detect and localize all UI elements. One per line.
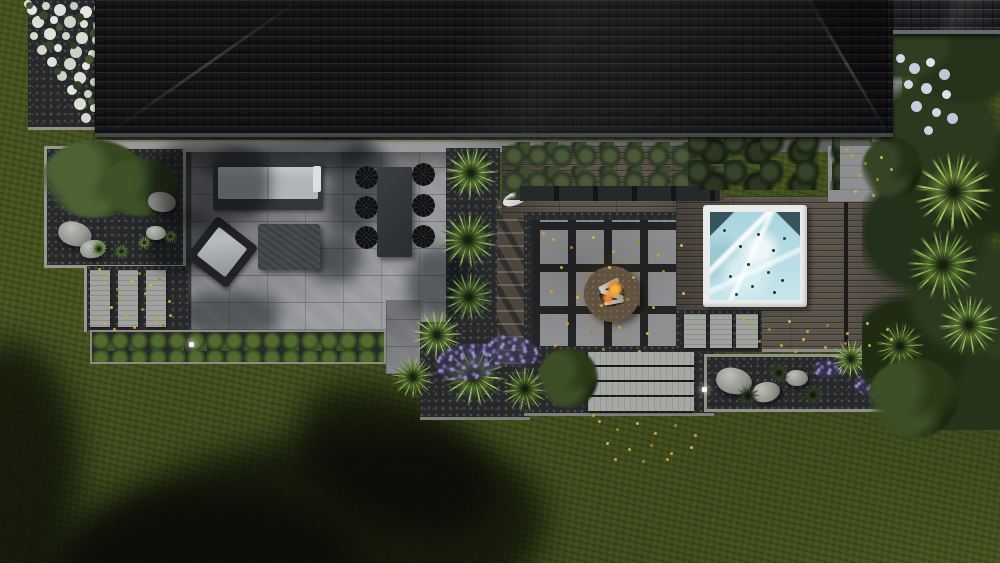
grass-tuft (162, 228, 179, 245)
hot-tub (703, 205, 807, 307)
hydrangeas (24, 0, 26, 2)
flame (602, 292, 614, 304)
left-step-3 (146, 270, 166, 327)
dining-chair (355, 196, 378, 219)
dark-grass-tuft (734, 382, 762, 410)
flowering-tree (896, 54, 905, 63)
ottoman (258, 224, 320, 270)
lawn-step-3 (588, 382, 694, 395)
lawn-step-2 (588, 367, 694, 380)
tree-overhang (862, 138, 922, 198)
lawn-step-4 (588, 397, 694, 411)
grass-tuft (136, 234, 153, 251)
deck-step-3 (736, 314, 758, 348)
dining-chair (412, 194, 435, 217)
sofa-pillow (313, 166, 321, 192)
fallen-leaves (542, 232, 545, 235)
dark-grass-tuft (766, 360, 792, 386)
palm-frond-plant (908, 146, 1000, 238)
left-step-2 (118, 270, 138, 327)
backyard-render (0, 0, 1000, 563)
bed-tree-shade (150, 140, 270, 225)
shrub (538, 348, 598, 408)
dining-table (377, 167, 412, 257)
dark-trees (688, 130, 840, 190)
fallen-leaves (846, 148, 849, 151)
deck-gap-line (844, 200, 848, 350)
house-roof (95, 0, 893, 137)
deck-step-2 (710, 314, 732, 348)
fire-pit (584, 266, 640, 322)
roof-hip-face (813, 0, 888, 133)
fallen-leaves (98, 268, 101, 271)
path-light (189, 342, 194, 347)
water-leaf-specks (717, 219, 720, 222)
hot-tub-water (710, 212, 800, 300)
dark-grass-tuft (800, 382, 826, 408)
path-light (702, 387, 707, 392)
armchair-cushion (197, 227, 248, 278)
grass-bed-strip (90, 330, 386, 364)
lawn-step-1 (588, 352, 694, 365)
deck-step-1 (684, 314, 706, 348)
dining-chair (355, 226, 378, 249)
grass-tuft (112, 242, 131, 261)
fallen-leaves (592, 414, 595, 417)
neighbor-roof (893, 0, 1000, 34)
grass-tuft (88, 238, 110, 260)
dining-chair (412, 225, 435, 248)
hydrangea-foliage (26, 2, 33, 9)
dining-chair (412, 163, 435, 186)
fallen-leaves (742, 318, 745, 321)
left-step-1 (90, 270, 110, 327)
ornamental-grass (440, 142, 502, 204)
dining-chair (355, 166, 378, 189)
shrub (868, 358, 958, 438)
roof-ridge-left (109, 0, 302, 134)
